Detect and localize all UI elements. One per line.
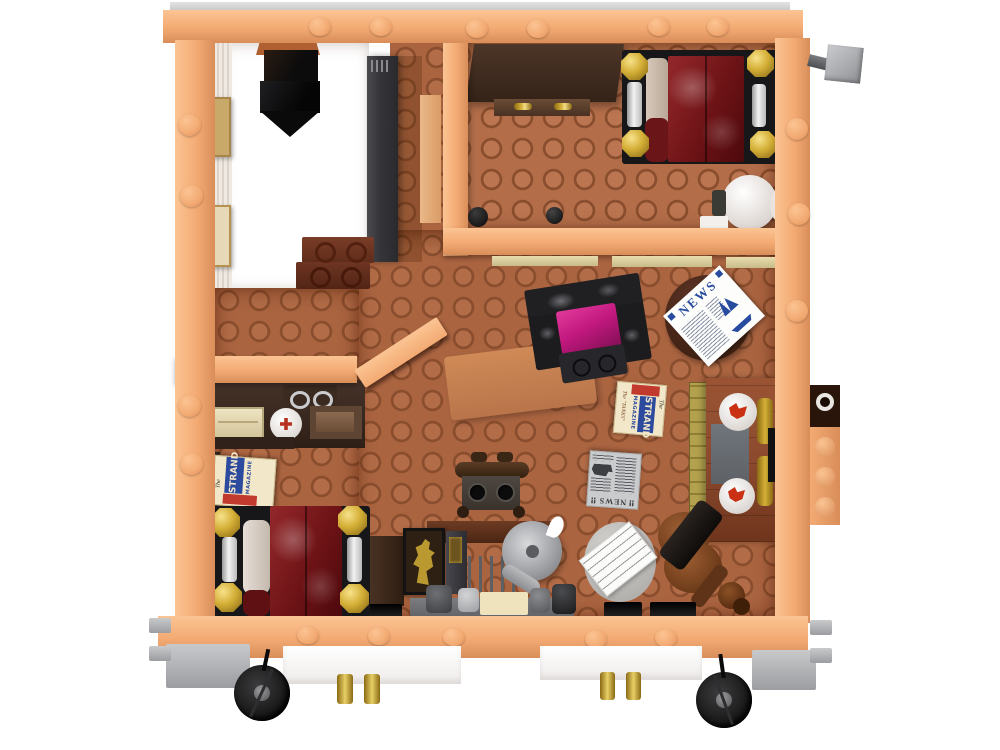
lego-floorplan-render: NEWS The STRAND MAGAZINE The "TANKS" ‼ N…	[0, 0, 1000, 750]
strand-red-seal	[222, 494, 257, 506]
chair-foot	[513, 506, 525, 518]
interior-wall-vertical	[443, 40, 468, 256]
outer-wall-bottom	[158, 616, 808, 658]
bed-bottom-blanket-seam	[305, 506, 307, 618]
wall-stud	[180, 453, 203, 475]
wall-stud	[786, 118, 808, 140]
wall-stud	[466, 19, 488, 38]
chair-stud	[497, 452, 513, 462]
door-knob	[546, 207, 563, 224]
gold-candle-foot	[364, 674, 380, 704]
bed-top-post	[627, 82, 642, 127]
brown-cabinet	[310, 406, 362, 439]
bed-top-post	[752, 84, 766, 127]
wall-stud	[786, 300, 808, 322]
gramophone-center	[526, 545, 539, 558]
wall-stud	[788, 203, 810, 225]
wall-stud	[707, 17, 729, 36]
desk-knob	[530, 588, 550, 613]
gray-corner-box	[752, 650, 816, 690]
bed-bottom-post	[222, 537, 237, 582]
bed-bottom-maroon	[243, 590, 270, 616]
desk-knob	[458, 588, 479, 612]
wardrobe-clasp	[554, 103, 572, 110]
gold-candle-foot	[337, 674, 353, 704]
strand-cover-stack: The STRAND MAGAZINE	[211, 455, 276, 509]
cream-box-line	[218, 421, 258, 423]
brick-stud-ring	[315, 242, 336, 263]
baseboard-tile	[492, 256, 598, 266]
wall-stud	[297, 626, 319, 644]
wardrobe-ledge	[494, 99, 590, 116]
desk-knob	[426, 585, 452, 613]
gray-news-columns	[592, 454, 613, 461]
strand-title: STRAND	[228, 451, 241, 493]
gray-news-columns	[590, 477, 611, 492]
wall-stud	[368, 627, 390, 645]
gray-side-pin	[149, 618, 171, 633]
gray-newspaper-tile: ‼ NEWS ‼	[586, 450, 642, 509]
bed-bottom-pillow	[243, 520, 270, 594]
wall-stud	[309, 17, 331, 36]
gold-candle-foot	[600, 672, 615, 700]
bed-bottom-post	[347, 537, 362, 582]
gray-side-pin	[810, 648, 832, 663]
cream-box	[210, 407, 264, 439]
wardrobe	[466, 44, 624, 102]
wall-stud	[370, 17, 392, 36]
gray-news-columns	[614, 457, 636, 494]
shelf-lower-band	[212, 437, 294, 449]
brick-stud-ring	[346, 242, 367, 263]
wagon-wheel	[234, 665, 290, 721]
pin-hole-icon	[816, 393, 834, 411]
chimney-slab	[367, 56, 398, 262]
bang-mark: ‼	[591, 495, 597, 504]
side-stud	[815, 467, 835, 487]
brick-stud-ring	[310, 267, 331, 288]
bang-mark: ‼	[629, 498, 635, 507]
hall-shadow	[396, 56, 422, 262]
silhouette-figure	[412, 539, 436, 585]
fireplace-slate	[711, 424, 749, 484]
desk-cone	[552, 584, 576, 614]
chair-hole	[470, 485, 485, 500]
plate-food	[280, 418, 292, 430]
chair-foot	[457, 506, 469, 518]
chair-stud	[471, 452, 487, 462]
side-stud	[815, 497, 835, 517]
wall-stud	[648, 17, 670, 36]
interior-wall-middle	[443, 228, 775, 255]
finial-cap	[824, 44, 864, 84]
strand-magazine-word: MAGAZINE	[245, 456, 254, 494]
strand-title-block: STRAND	[224, 457, 244, 494]
black-chute-mid	[260, 81, 320, 113]
wall-stud	[178, 395, 201, 417]
wall-stud	[527, 19, 549, 38]
wall-stud	[178, 114, 201, 136]
dark-stool	[712, 190, 726, 216]
bed-top-blanket-seam	[705, 56, 707, 162]
strand-title-block: STRAND	[637, 396, 656, 433]
wardrobe-clasp	[514, 103, 532, 110]
gray-news-headline: ‼ NEWS ‼	[587, 495, 638, 507]
slab-vents	[371, 60, 391, 72]
round-white-table	[722, 175, 777, 230]
gray-news-title: NEWS	[598, 496, 626, 507]
wagon-wheel	[696, 672, 752, 728]
gold-candle-foot	[626, 672, 641, 700]
gray-side-pin	[810, 620, 832, 635]
cabinet-front	[316, 412, 354, 432]
wall-stud	[655, 629, 677, 647]
baseboard-tile	[612, 256, 712, 267]
wall-stud	[180, 185, 203, 207]
wheel-spoke	[249, 669, 274, 717]
hall-door-panel	[420, 95, 441, 223]
strand-the: The	[657, 400, 664, 409]
nightstand	[368, 536, 404, 606]
gray-news-photo	[591, 463, 613, 476]
facade-panel	[540, 646, 702, 680]
gray-side-pin	[149, 646, 171, 661]
strand-the: The	[216, 479, 223, 488]
strand-side-text: The "TANKS"	[618, 390, 628, 434]
desk-paper	[480, 592, 528, 615]
desk-chair	[455, 452, 529, 520]
technic-bracket	[810, 385, 840, 525]
side-stud	[815, 437, 835, 457]
wall-stud	[443, 628, 465, 646]
strand-magazine-tile: The STRAND MAGAZINE The "TANKS"	[613, 381, 667, 437]
armchair	[524, 273, 654, 390]
black-pot	[468, 207, 488, 227]
black-chute	[264, 50, 318, 83]
strand-title: STRAND	[640, 396, 654, 438]
chair-hole	[498, 485, 513, 500]
white-plate	[270, 408, 302, 440]
brick-stud-ring	[341, 267, 362, 288]
silver-ring-icon	[290, 391, 310, 409]
violin-endknob	[733, 598, 750, 615]
